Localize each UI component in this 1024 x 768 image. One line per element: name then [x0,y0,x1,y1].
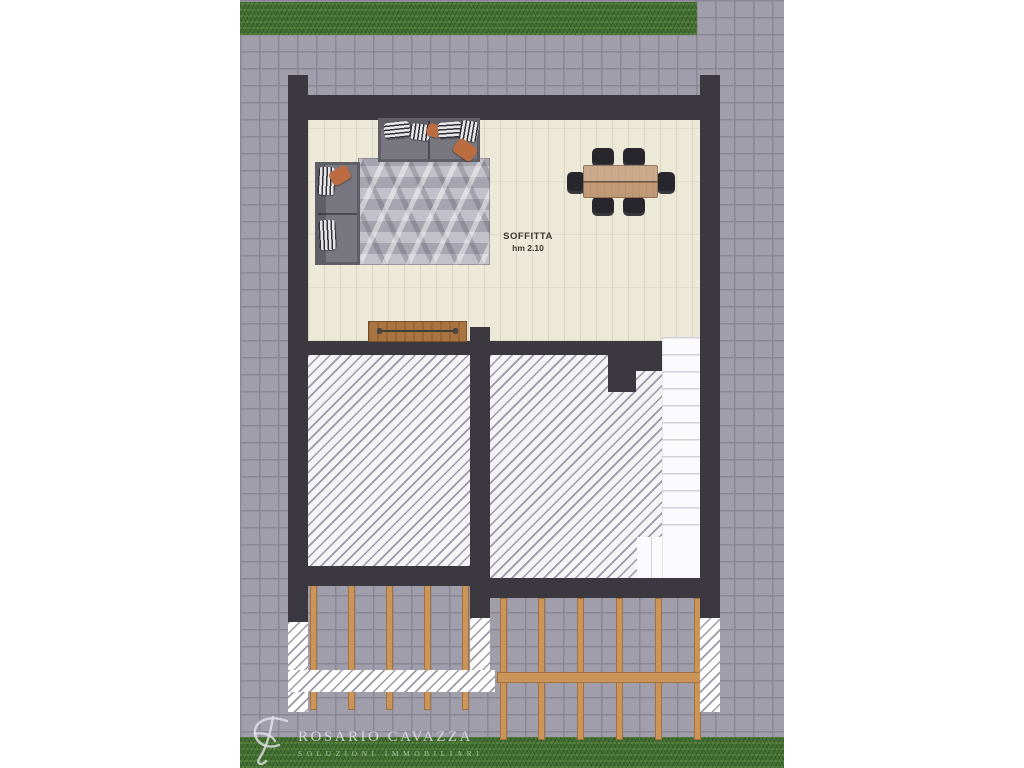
sideboard [368,321,467,342]
hatched-void-left [308,355,470,566]
lawn-strip-top [240,2,697,35]
wall-top [288,95,720,120]
striped-pillow [318,220,337,251]
watermark: ROSARIO CAVAZZA SOLUZIONI IMMOBILIARI [246,710,666,768]
dining-chair [592,197,614,216]
wall-pillar-top-left [288,75,308,95]
dining-chair [657,172,675,194]
dining-chair [623,197,645,216]
wall-bottom-right [490,578,720,598]
floorplan-render: SOFFITTA hm 2.10 ROSARIO CAVAZZA SOLUZIO… [0,0,1024,768]
hatched-edge-middle [470,618,490,672]
hatched-edge-left [288,622,308,712]
wall-divider-stub [470,327,490,341]
striped-pillow [383,121,411,140]
scene: SOFFITTA hm 2.10 ROSARIO CAVAZZA SOLUZIO… [240,0,784,768]
staircase [662,337,700,578]
dining-table [583,165,658,198]
brand-name: ROSARIO CAVAZZA [298,729,483,746]
wall-bottom-left [288,566,490,586]
wall-pillar-top-right [700,75,720,95]
wall-right [700,95,720,598]
wall-pillar-bottom-middle [470,586,490,618]
hatched-edge-band [288,670,495,692]
wall-divider [470,355,490,578]
wall-stair-corner-a [608,341,662,371]
wall-pillar-bottom-left [288,586,308,622]
stair-landing [637,537,662,578]
brand-tagline: SOLUZIONI IMMOBILIARI [298,749,483,758]
room-height-note: hm 2.10 [480,243,576,254]
brand-text-block: ROSARIO CAVAZZA SOLUZIONI IMMOBILIARI [298,729,483,758]
brand-monogram-icon [248,714,292,766]
wall-left [288,95,308,586]
room-label: SOFFITTA hm 2.10 [480,231,576,254]
sideboard-rail [380,330,455,332]
hatched-edge-right [700,617,720,712]
wall-stair-corner-b [608,371,636,392]
pergola-cross-beam [497,672,713,683]
room-name: SOFFITTA [480,231,576,243]
geometric-rug [358,158,490,265]
wall-pillar-bottom-right [700,598,720,618]
